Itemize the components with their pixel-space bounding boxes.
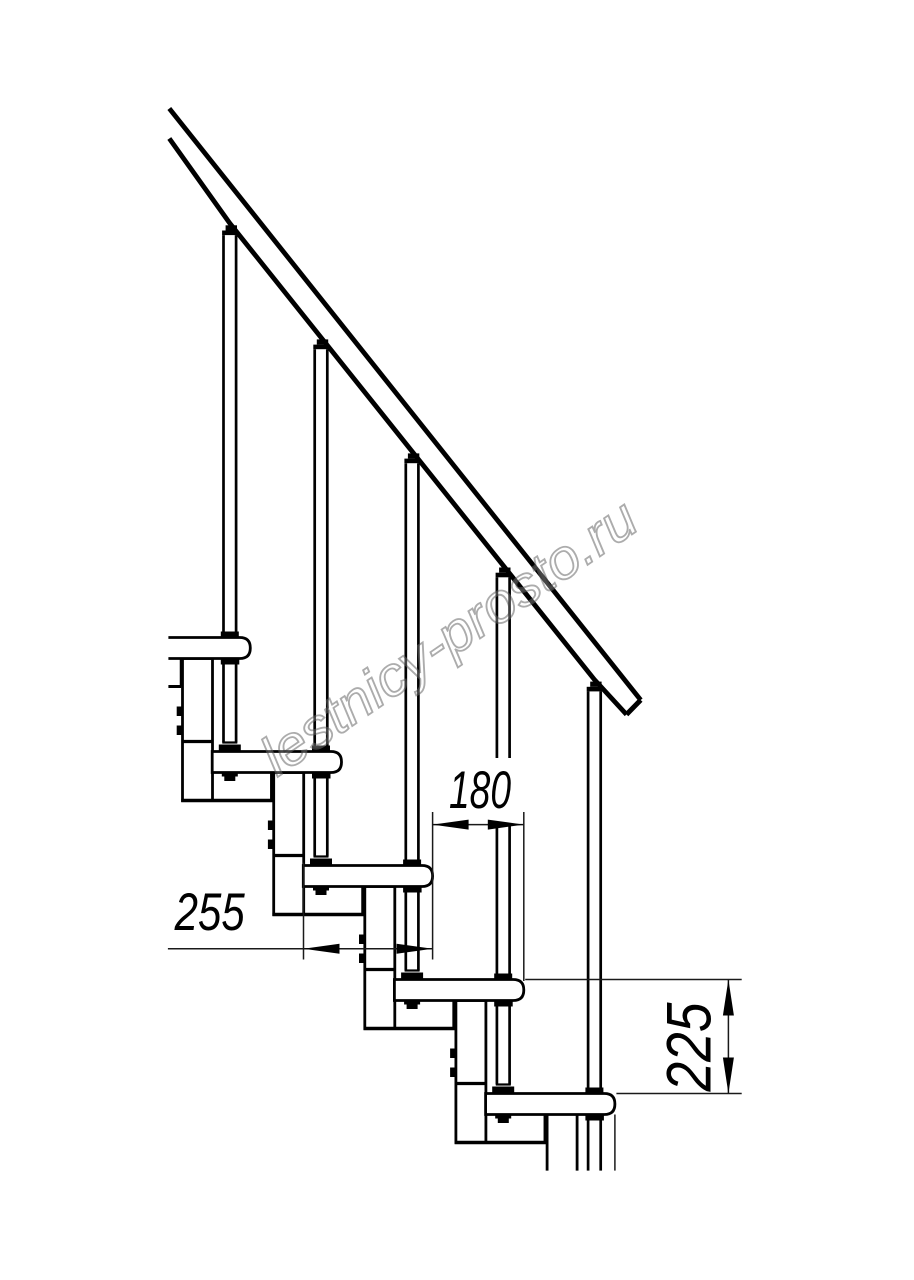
svg-text:180: 180 xyxy=(449,761,511,820)
svg-text:225: 225 xyxy=(655,1002,725,1092)
svg-text:255: 255 xyxy=(174,883,245,942)
